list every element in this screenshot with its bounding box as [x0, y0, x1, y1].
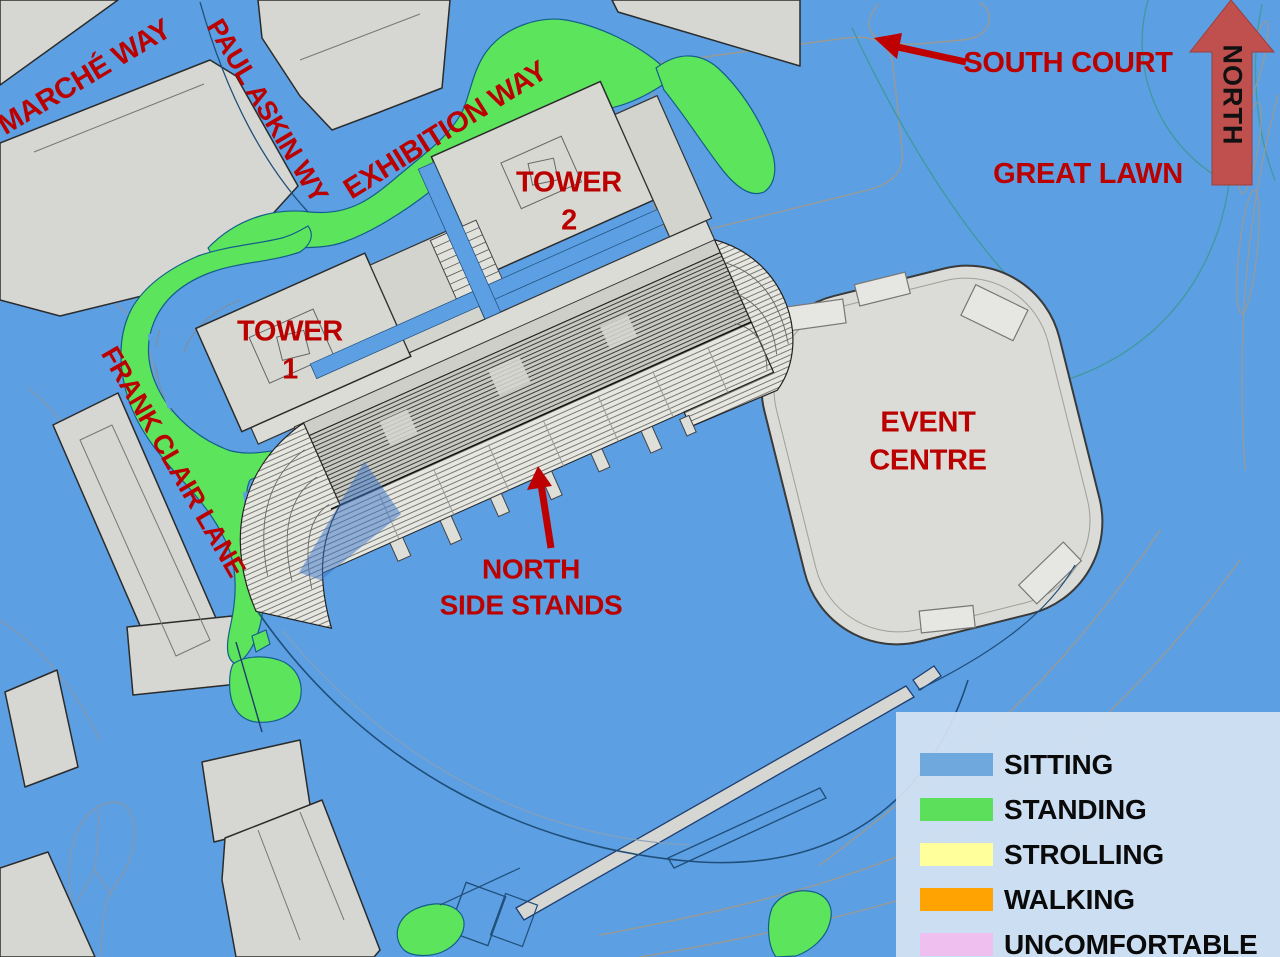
- compass-north-label: NORTH: [1217, 45, 1248, 146]
- legend-swatch-sitting: [920, 753, 993, 776]
- legend-row-strolling: STROLLING: [896, 832, 1280, 877]
- legend-row-standing: STANDING: [896, 787, 1280, 832]
- building: [127, 616, 238, 695]
- place-label-tower-2: TOWER 2: [516, 164, 622, 239]
- legend-swatch-strolling: [920, 843, 993, 866]
- legend-label-standing: STANDING: [1004, 794, 1147, 826]
- legend-swatch-uncomfortable: [920, 933, 993, 956]
- wind-comfort-map: MARCHÉ WAY PAUL ASKIN WY EXHIBITION WAY …: [0, 0, 1280, 957]
- place-label-great-lawn: GREAT LAWN: [993, 156, 1183, 194]
- legend-row-sitting: SITTING: [896, 742, 1280, 787]
- standing-area-small: [230, 657, 302, 722]
- legend-swatch-walking: [920, 888, 993, 911]
- legend-label-walking: WALKING: [1004, 884, 1135, 916]
- legend-label-sitting: SITTING: [1004, 749, 1113, 781]
- place-label-tower-1: TOWER 1: [237, 313, 343, 388]
- legend-label-strolling: STROLLING: [1004, 839, 1164, 871]
- place-label-event-centre: EVENT CENTRE: [869, 404, 986, 479]
- place-label-south-court: SOUTH COURT: [963, 45, 1172, 83]
- legend-swatch-standing: [920, 798, 993, 821]
- legend-label-uncomfortable: UNCOMFORTABLE: [1004, 929, 1258, 957]
- legend-row-uncomfortable: UNCOMFORTABLE: [896, 922, 1280, 957]
- place-label-north-side-stands: NORTH SIDE STANDS: [440, 552, 623, 625]
- legend-panel: SITTING STANDING STROLLING WALKING UNCOM…: [896, 712, 1280, 957]
- legend-row-walking: WALKING: [896, 877, 1280, 922]
